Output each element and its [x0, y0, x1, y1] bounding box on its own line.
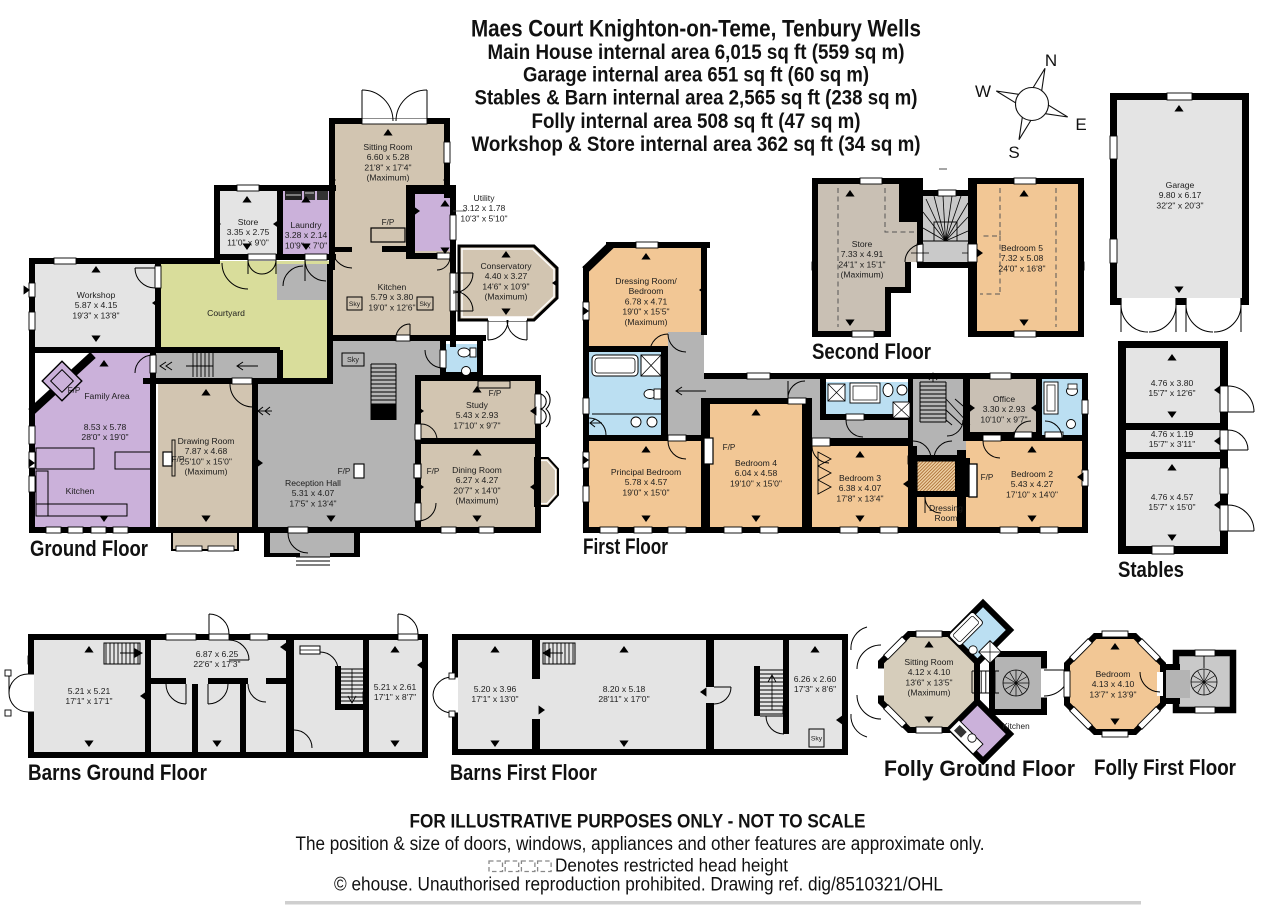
- svg-text:5.21 x 5.2117'1" x 17'1": 5.21 x 5.2117'1" x 17'1": [65, 686, 112, 706]
- svg-text:Conservatory4.40 x 3.2714'6" x: Conservatory4.40 x 3.2714'6" x 10'9"(Max…: [480, 261, 532, 302]
- svg-text:Bedroom4.13 x 4.1013'7" x 13'9: Bedroom4.13 x 4.1013'7" x 13'9": [1089, 669, 1136, 699]
- svg-text:Workshop5.87 x 4.1519'3" x 13': Workshop5.87 x 4.1519'3" x 13'8": [72, 290, 119, 320]
- svg-text:Sky: Sky: [419, 301, 431, 308]
- svg-text:W: W: [975, 82, 991, 101]
- svg-text:Folly First Floor: Folly First Floor: [1094, 755, 1236, 780]
- svg-text:6.26 x 2.6017'3" x 8'6": 6.26 x 2.6017'3" x 8'6": [794, 674, 837, 694]
- svg-text:Garage internal area 651 sq ft: Garage internal area 651 sq ft (60 sq m): [523, 64, 869, 87]
- svg-text:© ehouse. Unauthorised reprodu: © ehouse. Unauthorised reproduction proh…: [334, 875, 943, 896]
- svg-text:8.20 x 5.1828'11" x 17'0": 8.20 x 5.1828'11" x 17'0": [598, 684, 649, 704]
- svg-text:Family Area: Family Area: [84, 391, 130, 401]
- svg-text:Ground Floor: Ground Floor: [30, 536, 148, 561]
- svg-text:Barns Ground Floor: Barns Ground Floor: [28, 760, 207, 785]
- svg-text:The position & size of doors,: The position & size of doors, windows, a…: [296, 834, 985, 855]
- svg-text:Workshop & Store internal area: Workshop & Store internal area 362 sq ft…: [472, 133, 921, 156]
- svg-text:Main House internal area 6,015: Main House internal area 6,015 sq ft (55…: [488, 41, 905, 64]
- svg-text:Reception Hall5.31 x 4.0717'5": Reception Hall5.31 x 4.0717'5" x 13'4": [285, 478, 341, 508]
- svg-text:Barns First Floor: Barns First Floor: [450, 760, 597, 785]
- svg-text:Folly Ground Floor: Folly Ground Floor: [884, 756, 1075, 781]
- svg-text:F/P: F/P: [427, 467, 440, 476]
- svg-text:Stables: Stables: [1118, 557, 1184, 582]
- svg-text:Bedroom 36.38 x 4.0717'8" x 13: Bedroom 36.38 x 4.0717'8" x 13'4": [836, 473, 883, 503]
- svg-text:First Floor: First Floor: [583, 534, 668, 559]
- svg-text:FOR ILLUSTRATIVE PURPOSES ONLY: FOR ILLUSTRATIVE PURPOSES ONLY - NOT TO …: [410, 812, 866, 833]
- svg-text:S: S: [1008, 143, 1019, 162]
- svg-text:Sitting Room6.60 x 5.2821'8" x: Sitting Room6.60 x 5.2821'8" x 17'4"(Max…: [363, 142, 412, 183]
- svg-text:5.21 x 2.6117'1" x 8'7": 5.21 x 2.6117'1" x 8'7": [374, 682, 417, 702]
- svg-text:F/P: F/P: [382, 218, 395, 227]
- svg-text:Second Floor: Second Floor: [812, 339, 931, 364]
- svg-text:4.76 x 4.5715'7" x 15'0": 4.76 x 4.5715'7" x 15'0": [1148, 492, 1195, 512]
- svg-text:Kitchen: Kitchen: [1002, 722, 1030, 731]
- svg-text:Bedroom 57.32 x 5.0824'0" x 16: Bedroom 57.32 x 5.0824'0" x 16'8": [998, 243, 1045, 273]
- svg-text:6.87 x 6.2522'6" x 17'3": 6.87 x 6.2522'6" x 17'3": [193, 649, 240, 669]
- svg-text:Bedroom 25.43 x 4.2717'10" x 1: Bedroom 25.43 x 4.2717'10" x 14'0": [1006, 469, 1058, 499]
- svg-text:Stables & Barn internal area 2: Stables & Barn internal area 2,565 sq ft…: [475, 87, 918, 110]
- svg-text:F/P: F/P: [981, 473, 994, 482]
- svg-text:Sitting Room4.12 x 4.1013'6" x: Sitting Room4.12 x 4.1013'6" x 13'5"(Max…: [904, 657, 953, 698]
- svg-text:Dining Room6.27 x 4.2720'7" x: Dining Room6.27 x 4.2720'7" x 14'0"(Maxi…: [452, 465, 502, 506]
- svg-text:Courtyard: Courtyard: [207, 308, 245, 318]
- svg-text:Sky: Sky: [811, 736, 823, 743]
- svg-text:Maes Court Knighton-on-Teme, T: Maes Court Knighton-on-Teme, Tenbury Wel…: [471, 16, 921, 43]
- svg-text:Folly internal area 508 sq ft: Folly internal area 508 sq ft (47 sq m): [532, 110, 861, 133]
- svg-text:5.20 x 3.9617'1" x 13'0": 5.20 x 3.9617'1" x 13'0": [471, 684, 518, 704]
- svg-text:Drawing Room7.87 x 4.6825'10": Drawing Room7.87 x 4.6825'10" x 15'0"(Ma…: [178, 436, 235, 477]
- svg-text:Bedroom 46.04 x 4.5819'10" x 1: Bedroom 46.04 x 4.5819'10" x 15'0": [730, 458, 782, 488]
- svg-text:Denotes restricted head height: Denotes restricted head height: [555, 856, 788, 876]
- svg-text:E: E: [1075, 115, 1086, 134]
- svg-text:4.76 x 1.1915'7" x 3'11": 4.76 x 1.1915'7" x 3'11": [1149, 429, 1196, 449]
- svg-text:4.76 x 3.8015'7" x 12'6": 4.76 x 3.8015'7" x 12'6": [1148, 378, 1195, 398]
- svg-text:F/P: F/P: [338, 467, 351, 476]
- svg-text:Sky: Sky: [347, 355, 359, 364]
- svg-text:F/P: F/P: [489, 389, 502, 398]
- svg-text:N: N: [1045, 51, 1057, 70]
- svg-text:Kitchen: Kitchen: [66, 486, 95, 496]
- svg-text:Sky: Sky: [349, 301, 361, 308]
- svg-text:F/P: F/P: [723, 443, 736, 452]
- svg-text:8.53 x 5.7828'0" x 19'0": 8.53 x 5.7828'0" x 19'0": [81, 422, 128, 442]
- svg-text:F/P: F/P: [68, 386, 81, 395]
